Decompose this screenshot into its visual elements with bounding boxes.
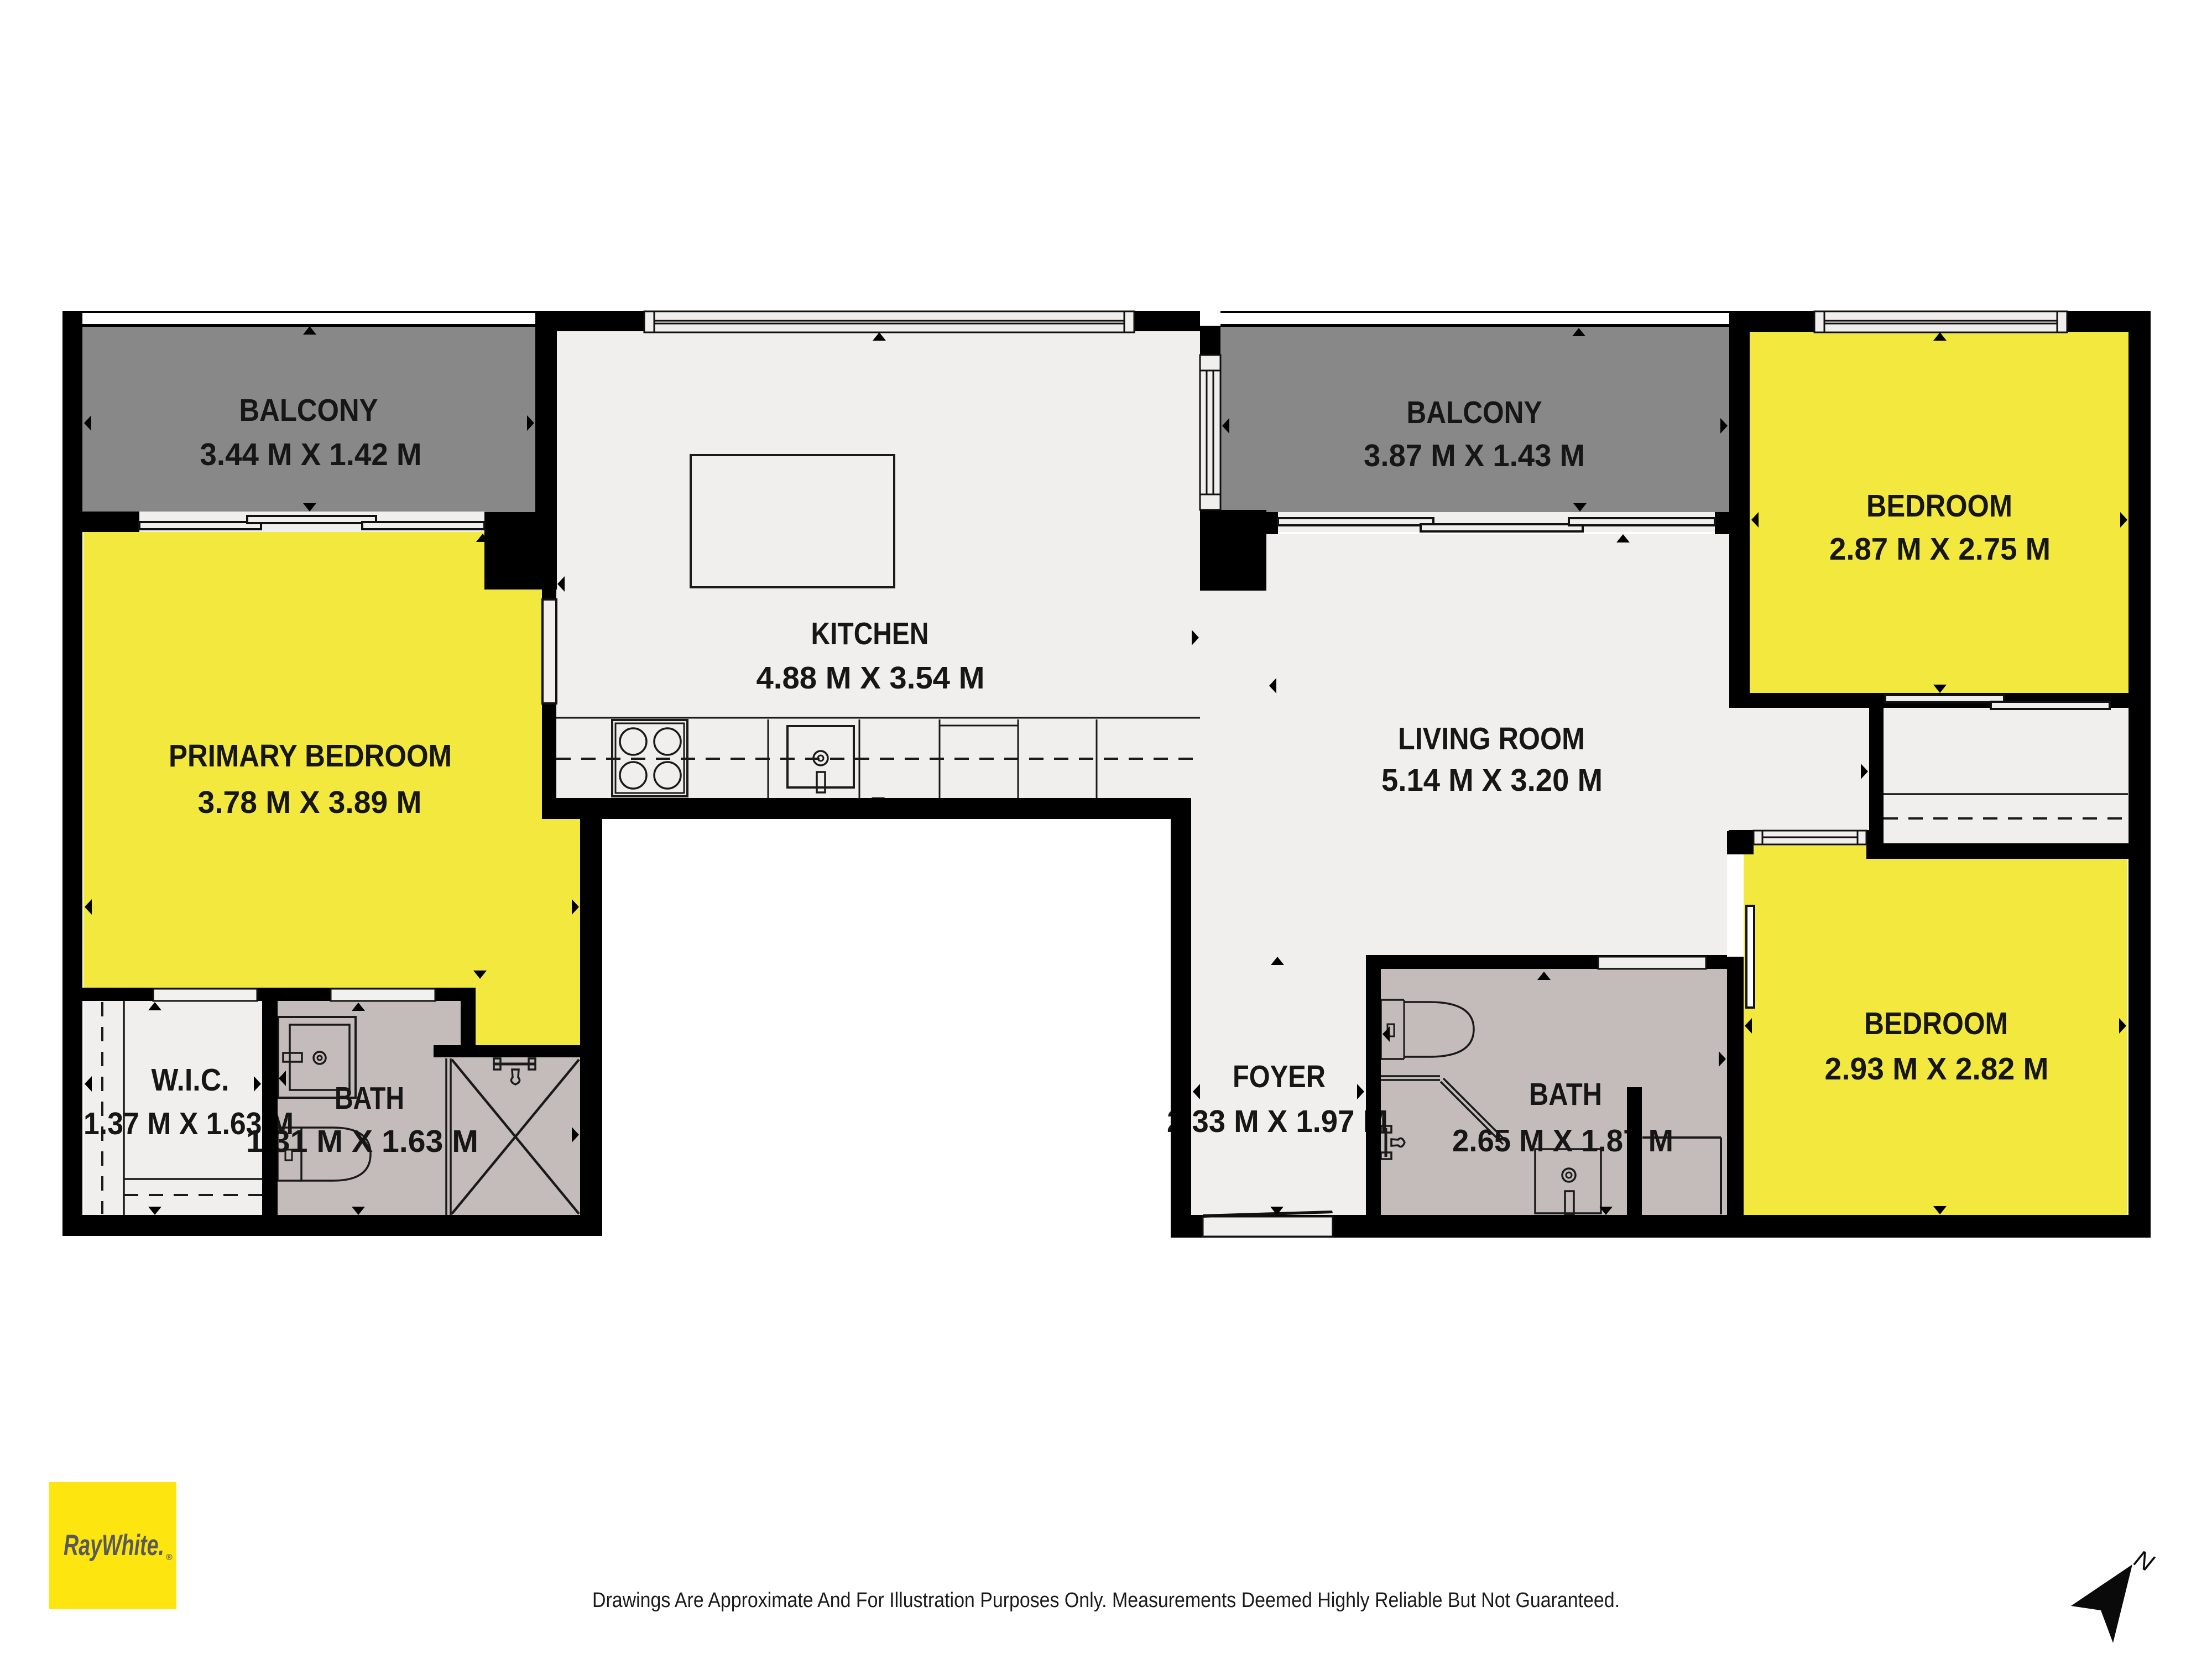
svg-text:LIVING ROOM: LIVING ROOM bbox=[1398, 721, 1585, 757]
svg-text:BEDROOM: BEDROOM bbox=[1866, 488, 2012, 524]
svg-text:3.44 M X 1.42 M: 3.44 M X 1.42 M bbox=[200, 437, 422, 472]
svg-text:2.93 M X 2.82 M: 2.93 M X 2.82 M bbox=[1825, 1051, 2049, 1087]
svg-text:Drawings Are Approximate And F: Drawings Are Approximate And For Illustr… bbox=[592, 1589, 1620, 1612]
svg-text:2.33 M X 1.97 M: 2.33 M X 1.97 M bbox=[1167, 1104, 1388, 1139]
svg-text:BATH: BATH bbox=[335, 1081, 404, 1116]
svg-text:BALCONY: BALCONY bbox=[239, 393, 378, 428]
svg-text:BEDROOM: BEDROOM bbox=[1864, 1006, 2008, 1041]
svg-text:1.31 M X 1.63 M: 1.31 M X 1.63 M bbox=[246, 1124, 478, 1159]
svg-text:BALCONY: BALCONY bbox=[1407, 395, 1542, 430]
svg-text:®: ® bbox=[166, 1553, 173, 1562]
svg-text:RayWhite.: RayWhite. bbox=[64, 1529, 164, 1562]
svg-text:3.87 M X 1.43 M: 3.87 M X 1.43 M bbox=[1364, 438, 1585, 473]
svg-text:BATH: BATH bbox=[1529, 1077, 1602, 1112]
svg-text:W.I.C.: W.I.C. bbox=[152, 1062, 229, 1098]
svg-text:2.87 M X 2.75 M: 2.87 M X 2.75 M bbox=[1829, 531, 2051, 567]
svg-text:4.88 M X 3.54 M: 4.88 M X 3.54 M bbox=[757, 660, 985, 696]
svg-text:3.78 M X 3.89 M: 3.78 M X 3.89 M bbox=[198, 785, 422, 820]
svg-text:PRIMARY BEDROOM: PRIMARY BEDROOM bbox=[169, 738, 452, 774]
svg-text:5.14 M X 3.20 M: 5.14 M X 3.20 M bbox=[1381, 763, 1603, 798]
svg-text:FOYER: FOYER bbox=[1233, 1059, 1326, 1094]
svg-text:KITCHEN: KITCHEN bbox=[811, 616, 929, 651]
